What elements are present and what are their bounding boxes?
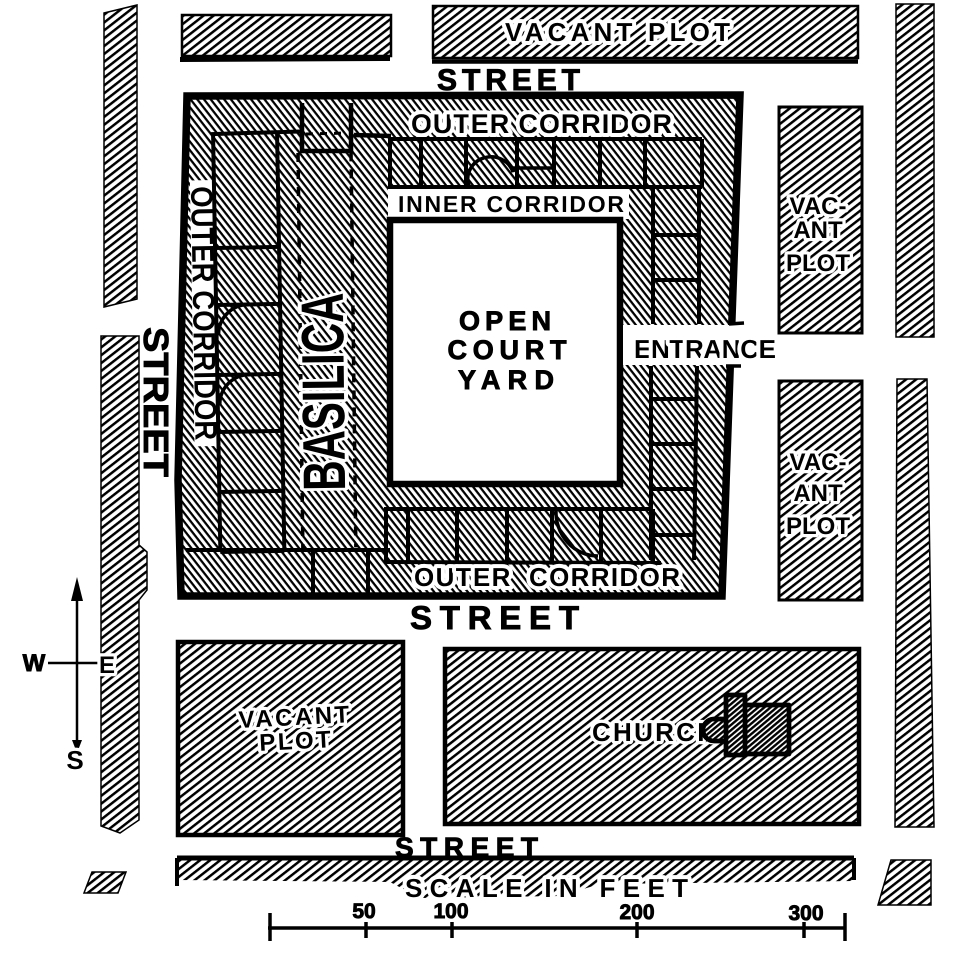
svg-text:OUTER CORRIDOR: OUTER CORRIDOR: [414, 562, 680, 592]
svg-text:W: W: [23, 650, 46, 677]
svg-text:BASILICA: BASILICA: [289, 292, 358, 491]
svg-text:S: S: [66, 745, 83, 775]
svg-text:VACANT PLOT: VACANT PLOT: [505, 17, 730, 47]
svg-text:INNER CORRIDOR: INNER CORRIDOR: [398, 191, 624, 217]
svg-text:VAC-ANTPLOT: VAC-ANTPLOT: [786, 449, 850, 540]
svg-text:200: 200: [619, 901, 654, 924]
svg-text:OUTER CORRIDOR: OUTER CORRIDOR: [411, 109, 672, 139]
svg-text:300: 300: [788, 902, 823, 925]
svg-text:ENTRANCE: ENTRANCE: [634, 334, 776, 364]
svg-text:50: 50: [352, 900, 375, 923]
svg-text:COURT: COURT: [448, 335, 568, 365]
svg-text:E: E: [99, 652, 115, 679]
svg-text:VAC-ANTPLOT: VAC-ANTPLOT: [786, 193, 850, 277]
svg-text:100: 100: [433, 900, 468, 923]
svg-text:STREET: STREET: [136, 327, 175, 477]
